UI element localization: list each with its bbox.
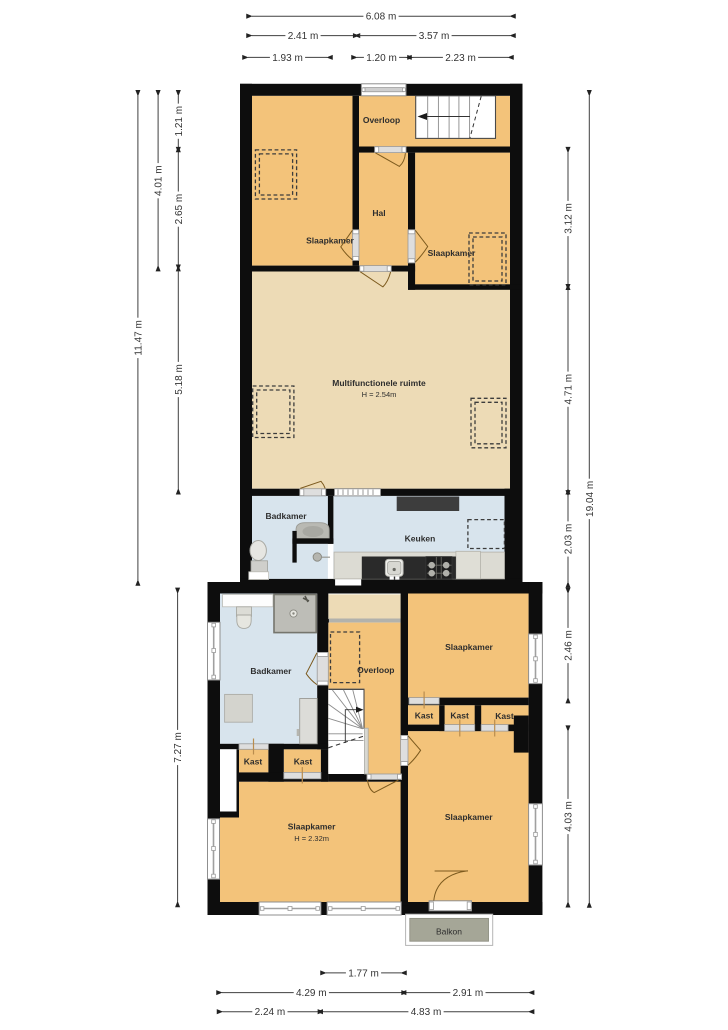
- svg-text:Slaapkamer: Slaapkamer: [306, 236, 354, 246]
- svg-text:Multifunctionele ruimte: Multifunctionele ruimte: [332, 378, 426, 388]
- svg-text:Slaapkamer: Slaapkamer: [288, 822, 336, 832]
- svg-text:Slaapkamer: Slaapkamer: [428, 248, 476, 258]
- svg-text:2.23 m: 2.23 m: [445, 53, 476, 64]
- svg-text:11.47 m: 11.47 m: [133, 320, 144, 355]
- svg-text:4.83 m: 4.83 m: [411, 1007, 442, 1018]
- svg-text:Kast: Kast: [244, 757, 263, 767]
- svg-text:6.08 m: 6.08 m: [366, 12, 397, 23]
- svg-text:Hal: Hal: [372, 208, 385, 218]
- svg-text:7.27 m: 7.27 m: [173, 732, 184, 763]
- svg-text:H = 2.54m: H = 2.54m: [362, 390, 397, 399]
- svg-text:Balkon: Balkon: [436, 927, 462, 937]
- svg-text:2.91 m: 2.91 m: [453, 988, 484, 999]
- svg-text:19.04 m: 19.04 m: [585, 481, 596, 517]
- svg-text:Badkamer: Badkamer: [265, 511, 307, 521]
- svg-text:3.12 m: 3.12 m: [564, 203, 575, 234]
- svg-text:3.57 m: 3.57 m: [419, 31, 450, 42]
- svg-text:1.20 m: 1.20 m: [366, 53, 397, 64]
- svg-text:4.01 m: 4.01 m: [154, 165, 165, 196]
- svg-text:Badkamer: Badkamer: [250, 666, 292, 676]
- svg-text:1.21 m: 1.21 m: [174, 106, 185, 137]
- svg-text:2.03 m: 2.03 m: [564, 524, 575, 555]
- svg-text:Overloop: Overloop: [363, 115, 400, 125]
- svg-text:Kast: Kast: [495, 711, 514, 721]
- svg-text:4.71 m: 4.71 m: [564, 374, 575, 405]
- svg-text:Keuken: Keuken: [405, 534, 436, 544]
- svg-text:4.29 m: 4.29 m: [296, 988, 327, 999]
- svg-text:4.03 m: 4.03 m: [564, 801, 575, 832]
- svg-text:H = 2.32m: H = 2.32m: [294, 834, 329, 843]
- svg-text:Kast: Kast: [415, 711, 434, 721]
- svg-text:1.93 m: 1.93 m: [272, 53, 303, 64]
- svg-text:2.46 m: 2.46 m: [564, 630, 575, 661]
- svg-text:2.24 m: 2.24 m: [255, 1007, 286, 1018]
- svg-text:Kast: Kast: [450, 711, 469, 721]
- svg-text:2.65 m: 2.65 m: [174, 194, 185, 225]
- svg-text:1.77 m: 1.77 m: [348, 968, 379, 979]
- svg-text:Kast: Kast: [294, 757, 313, 767]
- svg-text:5.18 m: 5.18 m: [174, 364, 185, 395]
- svg-text:Slaapkamer: Slaapkamer: [445, 812, 493, 822]
- svg-text:Overloop: Overloop: [357, 665, 394, 675]
- svg-text:Slaapkamer: Slaapkamer: [445, 642, 493, 652]
- svg-text:2.41 m: 2.41 m: [288, 31, 319, 42]
